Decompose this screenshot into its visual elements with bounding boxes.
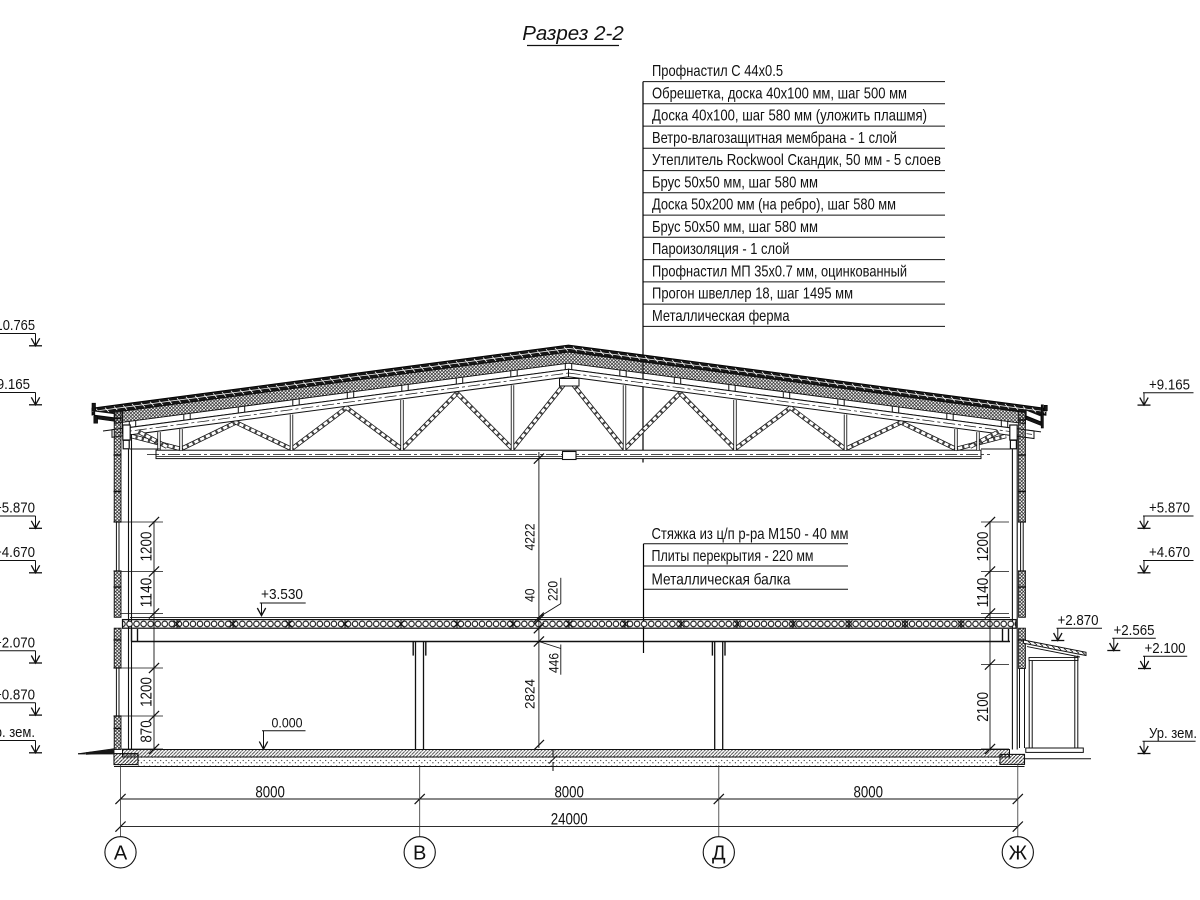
svg-text:1200: 1200: [139, 532, 156, 562]
svg-text:Разрез 2-2: Разрез 2-2: [522, 22, 624, 45]
svg-text:1200: 1200: [139, 677, 156, 707]
svg-text:+9.165: +9.165: [0, 377, 30, 393]
svg-text:Ж: Ж: [1009, 843, 1028, 865]
svg-text:Доска 50х200 мм (на ребро), ша: Доска 50х200 мм (на ребро), шаг 580 мм: [652, 197, 896, 214]
svg-text:Брус 50х50 мм, шаг 580 мм: Брус 50х50 мм, шаг 580 мм: [652, 219, 818, 236]
svg-text:Плиты перекрытия - 220 мм: Плиты перекрытия - 220 мм: [652, 548, 814, 565]
svg-text:+2.870: +2.870: [1058, 613, 1099, 629]
svg-text:446: 446: [546, 653, 562, 673]
svg-text:8000: 8000: [255, 783, 285, 801]
svg-text:+3.530: +3.530: [261, 587, 303, 603]
svg-text:+5.870: +5.870: [0, 501, 35, 517]
svg-text:+2.100: +2.100: [1145, 641, 1186, 657]
svg-text:24000: 24000: [551, 811, 588, 829]
svg-text:+2.070: +2.070: [0, 635, 35, 651]
svg-text:Доска 40х100, шаг 580 мм (улож: Доска 40х100, шаг 580 мм (уложить плашмя…: [652, 108, 927, 125]
svg-text:0.000: 0.000: [272, 715, 303, 731]
svg-text:870: 870: [139, 720, 156, 742]
svg-text:+10.765: +10.765: [0, 318, 35, 334]
svg-text:Металлическая ферма: Металлическая ферма: [652, 308, 790, 325]
svg-text:1140: 1140: [139, 578, 156, 608]
svg-text:+4.670: +4.670: [0, 545, 35, 561]
svg-text:Обрешетка, доска 40х100 мм, ша: Обрешетка, доска 40х100 мм, шаг 500 мм: [652, 85, 907, 102]
svg-text:1200: 1200: [975, 532, 992, 562]
svg-text:+2.565: +2.565: [1114, 623, 1155, 639]
svg-text:+4.670: +4.670: [1149, 545, 1190, 561]
svg-text:Прогон швеллер 18, шаг 1495 мм: Прогон швеллер 18, шаг 1495 мм: [652, 286, 853, 303]
svg-text:Металлическая балка: Металлическая балка: [652, 571, 791, 588]
svg-text:Пароизоляция - 1 слой: Пароизоляция - 1 слой: [652, 241, 790, 258]
svg-text:Профнастил С 44х0.5: Профнастил С 44х0.5: [652, 63, 783, 80]
svg-text:4222: 4222: [522, 523, 538, 550]
svg-text:Стяжка из ц/п р-ра М150 - 40 м: Стяжка из ц/п р-ра М150 - 40 мм: [652, 526, 849, 543]
svg-text:А: А: [114, 843, 128, 865]
svg-text:Брус 50х50 мм, шаг 580 мм: Брус 50х50 мм, шаг 580 мм: [652, 174, 818, 191]
svg-text:Утеплитель Rockwool Скандик, 5: Утеплитель Rockwool Скандик, 50 мм - 5 с…: [652, 152, 941, 169]
svg-text:Профнастил МП 35х0.7 мм, оцинк: Профнастил МП 35х0.7 мм, оцинкованный: [652, 263, 907, 280]
svg-text:2100: 2100: [975, 692, 992, 722]
svg-text:8000: 8000: [854, 783, 884, 801]
svg-text:Ветро-влагозащитная мембрана -: Ветро-влагозащитная мембрана - 1 слой: [652, 130, 897, 147]
svg-text:Ур. зем.: Ур. зем.: [0, 725, 35, 741]
svg-text:220: 220: [545, 581, 561, 601]
svg-text:В: В: [413, 843, 426, 865]
svg-text:Ур. зем.: Ур. зем.: [1149, 726, 1197, 742]
svg-text:+0.870: +0.870: [0, 687, 35, 703]
svg-text:1140: 1140: [975, 578, 992, 608]
svg-text:Д: Д: [712, 843, 726, 865]
svg-text:40: 40: [522, 588, 538, 602]
svg-text:+9.165: +9.165: [1149, 377, 1190, 393]
svg-text:2824: 2824: [522, 679, 538, 709]
svg-text:+5.870: +5.870: [1149, 501, 1190, 517]
svg-text:8000: 8000: [554, 783, 584, 801]
